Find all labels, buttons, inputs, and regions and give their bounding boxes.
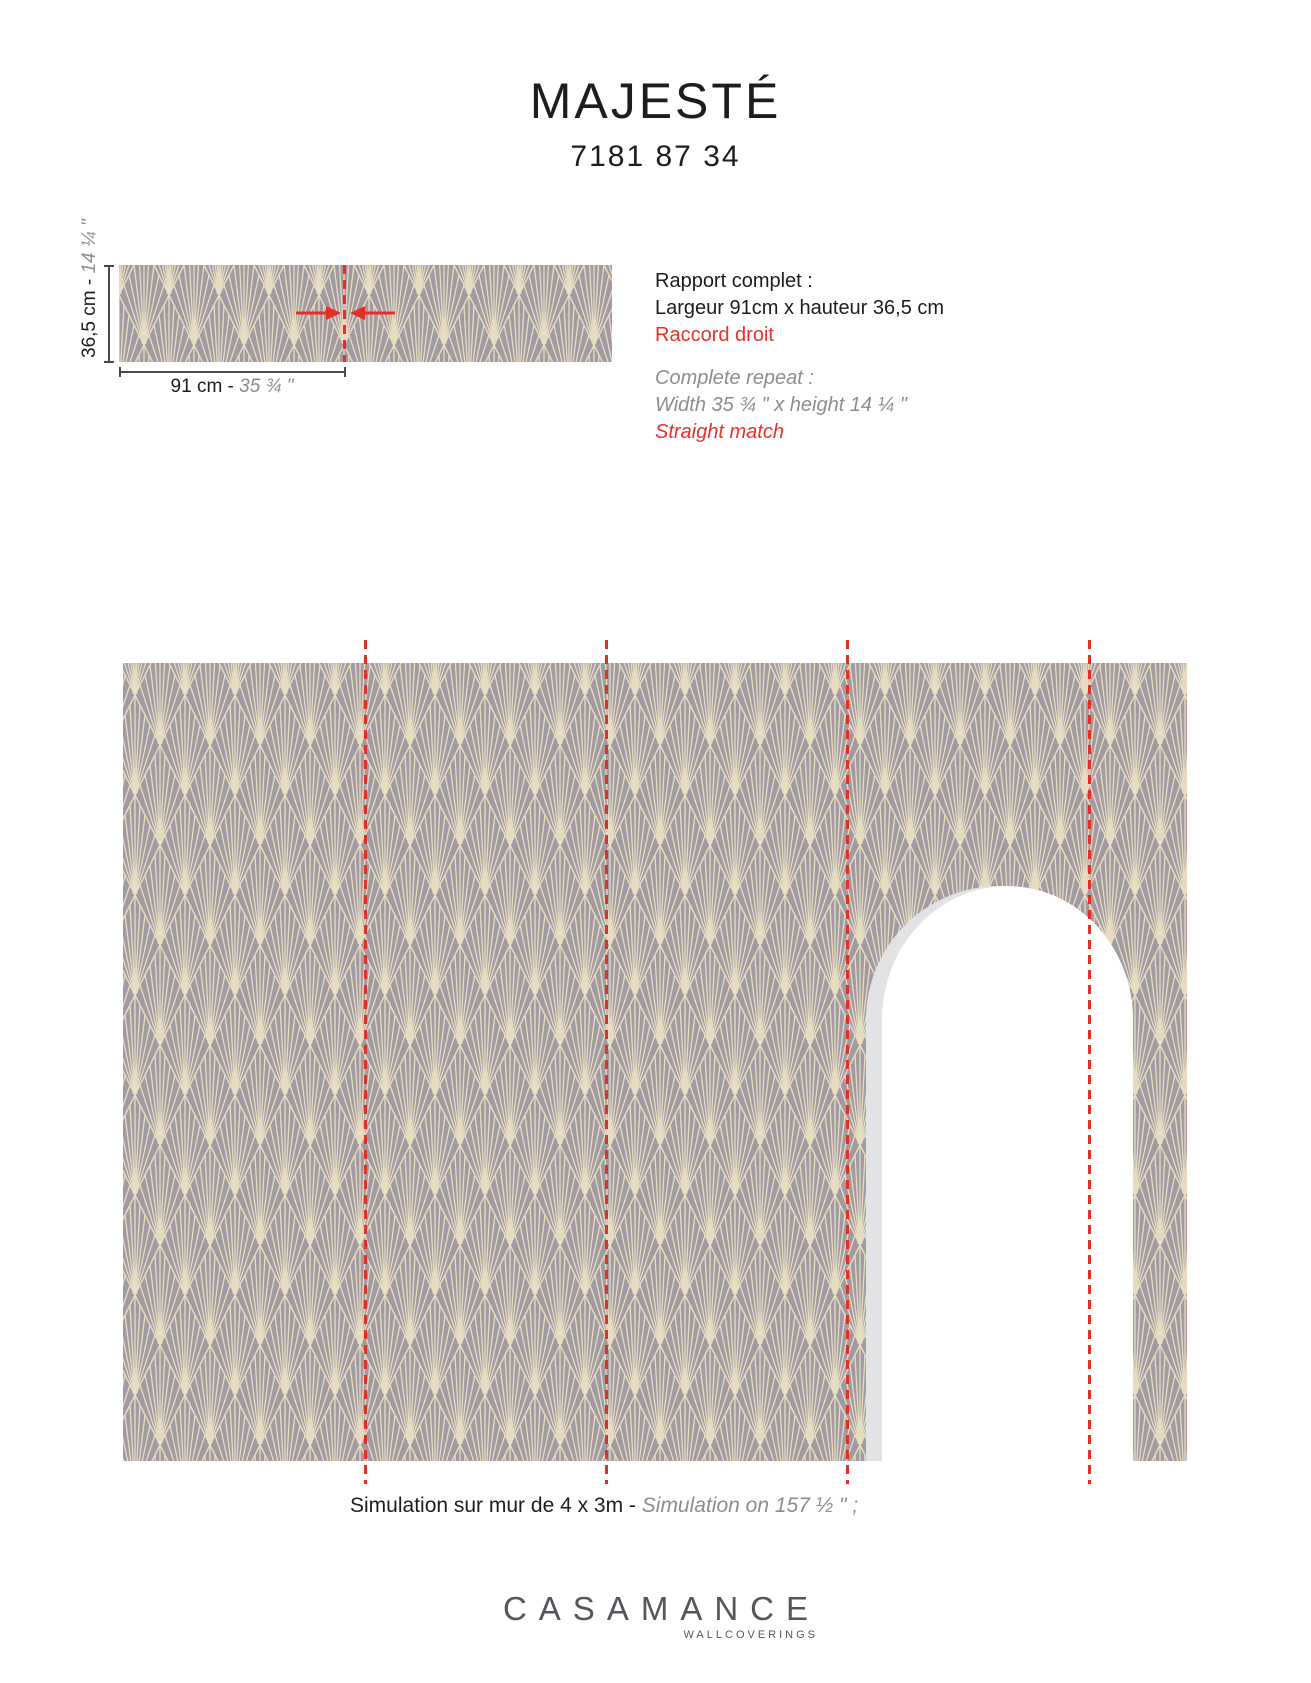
- pattern-reference-number: 7181 87 34: [0, 140, 1311, 174]
- arrow-left-icon: [350, 305, 395, 321]
- brand-logo-subtitle: WALLCOVERINGS: [491, 1629, 820, 1641]
- seam-dashed-line-1: [364, 640, 367, 1484]
- strip-seam-dashed-line: [343, 265, 346, 362]
- brand-logo: CASAMANCE WALLCOVERINGS: [0, 1590, 1311, 1643]
- height-imperial-text: 14 ¼ ": [79, 219, 100, 273]
- seam-dashed-line-3: [846, 640, 849, 1484]
- page-title: MAJESTÉ: [0, 72, 1311, 130]
- width-dimension-line: [119, 371, 345, 373]
- width-dimension-label: 91 cm - 35 ¾ ": [112, 376, 352, 398]
- height-metric-text: 36,5 cm -: [79, 274, 100, 358]
- repeat-spec-block: Rapport complet : Largeur 91cm x hauteur…: [655, 268, 944, 446]
- width-imperial-text: 35 ¾ ": [239, 376, 293, 397]
- spec-fr-dimensions: Largeur 91cm x hauteur 36,5 cm: [655, 295, 944, 322]
- spec-en-dimensions: Width 35 ¾ " x height 14 ¼ ": [655, 392, 944, 419]
- height-dimension-tick-top: [104, 265, 114, 267]
- simulation-caption: Simulation sur mur de 4 x 3m - Simulatio…: [350, 1494, 858, 1518]
- spec-en-block: Complete repeat : Width 35 ¾ " x height …: [655, 365, 944, 446]
- arrow-right-icon: [296, 305, 341, 321]
- seam-dashed-line-2: [605, 640, 608, 1484]
- spec-fr-match-type: Raccord droit: [655, 322, 944, 349]
- simulation-caption-en: Simulation on 157 ½ " ;: [642, 1494, 858, 1517]
- height-dimension-label: 36,5 cm - 14 ¼ ": [79, 219, 101, 358]
- spec-en-title: Complete repeat :: [655, 365, 944, 392]
- seam-dashed-line-4: [1088, 640, 1091, 1484]
- height-dimension-line: [108, 266, 110, 362]
- simulation-caption-fr: Simulation sur mur de 4 x 3m -: [350, 1494, 642, 1517]
- wall-simulation-image: [123, 663, 1187, 1461]
- height-dimension-tick-bottom: [104, 361, 114, 363]
- width-metric-text: 91 cm -: [171, 376, 240, 397]
- spec-sheet-page: MAJESTÉ 7181 87 34: [0, 0, 1311, 1683]
- brand-name-text: CASAMANCE: [491, 1590, 820, 1628]
- spec-fr-block: Rapport complet : Largeur 91cm x hauteur…: [655, 268, 944, 349]
- brand-logo-name: CASAMANCE WALLCOVERINGS: [491, 1590, 820, 1641]
- spec-en-match-type: Straight match: [655, 419, 944, 446]
- arch-doorway-opening: [882, 886, 1133, 1461]
- wall-simulation-svg: [123, 663, 1187, 1461]
- spec-fr-title: Rapport complet :: [655, 268, 944, 295]
